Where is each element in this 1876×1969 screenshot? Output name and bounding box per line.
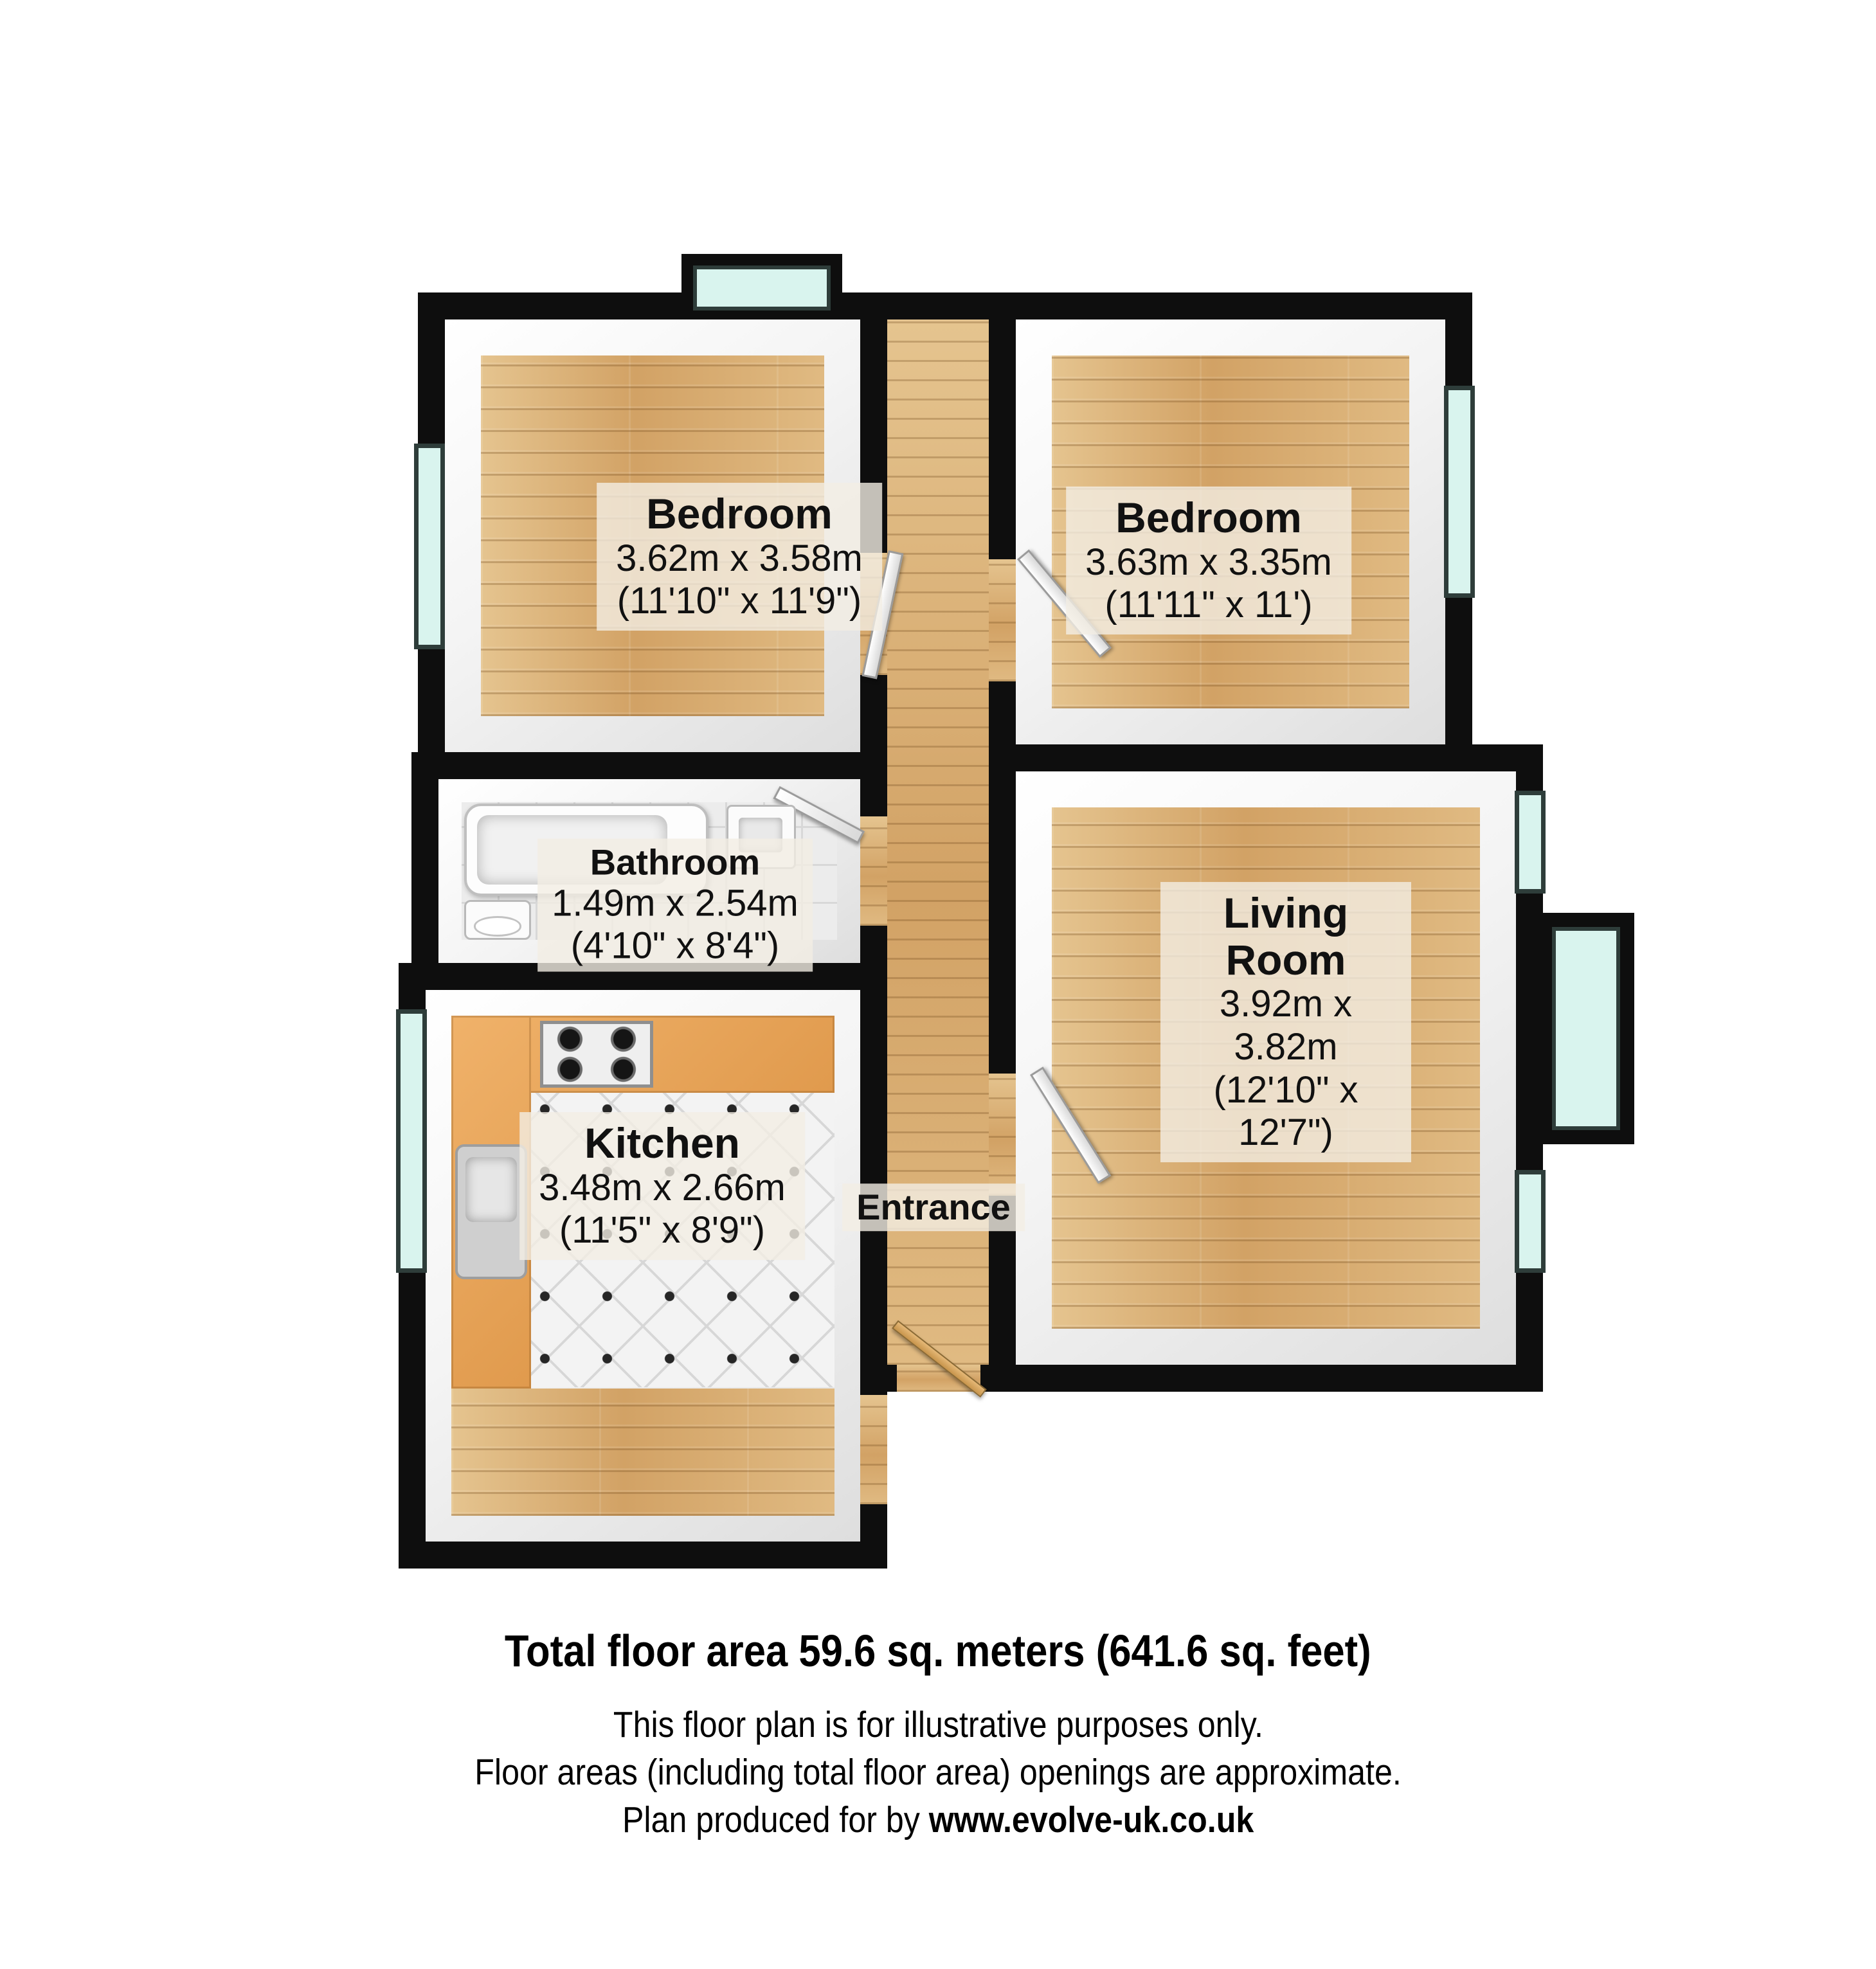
- room-label-bedroom-right: Bedroom 3.63m x 3.35m (11'11" x 11'): [1066, 487, 1351, 634]
- produced-by-site: www.evolve-uk.co.uk: [929, 1799, 1254, 1840]
- room-label-kitchen: Kitchen 3.48m x 2.66m (11'5" x 8'9"): [519, 1112, 805, 1260]
- footer-disclaimer-1: This floor plan is for illustrative purp…: [0, 1704, 1876, 1746]
- room-name: Bathroom: [552, 843, 798, 883]
- kitchen-hob: [540, 1021, 653, 1088]
- room-kitchen: [399, 963, 887, 1569]
- kitchen-floor-wood: [451, 1389, 834, 1516]
- room-size-metric: 3.63m x 3.35m: [1085, 541, 1332, 584]
- room-size-metric: 3.48m x 2.66m: [539, 1167, 786, 1210]
- room-name: Entrance: [856, 1187, 1011, 1227]
- room-size-metric: 3.62m x 3.58m: [616, 537, 863, 580]
- footer-disclaimer-2: Floor areas (including total floor area)…: [0, 1751, 1876, 1794]
- floor-plan-page: { "plan": { "rooms": { "bedroom_left": {…: [0, 0, 1876, 1969]
- kitchen-sink: [455, 1144, 527, 1279]
- bedroom-right-window: [1444, 386, 1475, 598]
- living-window-bay: [1538, 913, 1634, 1144]
- bedroom-left-window-bay: [681, 254, 842, 319]
- disclaimer-text-2: Floor areas (including total floor area)…: [474, 1751, 1401, 1794]
- room-label-bathroom: Bathroom 1.49m x 2.54m (4'10" x 8'4"): [537, 839, 813, 972]
- total-floor-area-text: Total floor area 59.6 sq. meters (641.6 …: [505, 1625, 1371, 1677]
- living-window-upper: [1515, 791, 1546, 894]
- disclaimer-text-1: This floor plan is for illustrative purp…: [613, 1704, 1263, 1746]
- room-label-living: Living Room 3.92m x 3.82m (12'10" x 12'7…: [1160, 882, 1411, 1162]
- bedroom-left-window: [414, 444, 445, 649]
- living-door-opening: [989, 1074, 1016, 1196]
- living-bay-glass: [1552, 927, 1620, 1130]
- room-size-metric: 3.92m x 3.82m: [1180, 983, 1392, 1068]
- kitchen-door-opening: [860, 1395, 887, 1504]
- room-size-imperial: (4'10" x 8'4"): [552, 925, 798, 968]
- room-label-entrance: Entrance: [842, 1183, 1025, 1231]
- footer-produced-line: Plan produced for by www.evolve-uk.co.uk: [0, 1799, 1876, 1841]
- kitchen-sink-basin: [465, 1157, 516, 1222]
- toilet: [464, 900, 531, 940]
- room-size-imperial: (11'10" x 11'9"): [616, 580, 863, 623]
- produced-by-text: Plan produced for by www.evolve-uk.co.uk: [622, 1799, 1254, 1841]
- room-label-bedroom-left: Bedroom 3.62m x 3.58m (11'10" x 11'9"): [597, 483, 882, 631]
- produced-by-prefix: Plan produced for by: [622, 1799, 929, 1840]
- bedroom-right-door-opening: [989, 559, 1016, 681]
- bedroom-left-bay-glass: [693, 265, 831, 310]
- room-size-imperial: (11'5" x 8'9"): [539, 1209, 786, 1252]
- room-size-imperial: (12'10" x 12'7"): [1180, 1069, 1392, 1155]
- footer-total-area-line: Total floor area 59.6 sq. meters (641.6 …: [0, 1625, 1876, 1677]
- room-name: Living Room: [1180, 890, 1392, 983]
- room-size-imperial: (11'11" x 11'): [1085, 584, 1332, 627]
- toilet-bowl: [474, 916, 521, 936]
- room-name: Bedroom: [1085, 494, 1332, 541]
- room-size-metric: 1.49m x 2.54m: [552, 882, 798, 925]
- living-window-lower: [1515, 1170, 1546, 1273]
- room-name: Bedroom: [616, 490, 863, 537]
- kitchen-window: [396, 1009, 427, 1273]
- room-name: Kitchen: [539, 1120, 786, 1167]
- bathroom-door-opening: [860, 816, 887, 926]
